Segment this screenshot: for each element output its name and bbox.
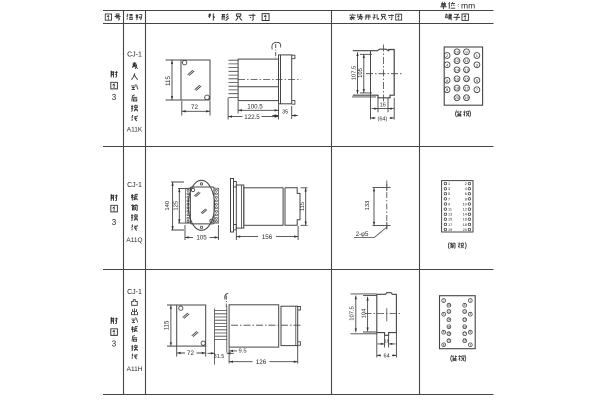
svg-text:5: 5	[476, 78, 479, 83]
svg-text:15: 15	[464, 76, 469, 81]
svg-text:12: 12	[455, 58, 460, 63]
svg-text:14: 14	[463, 213, 467, 217]
svg-text:5: 5	[448, 192, 450, 196]
svg-text:72: 72	[191, 104, 198, 111]
svg-text:1: 1	[476, 53, 479, 58]
svg-text:A11H: A11H	[127, 366, 143, 373]
svg-text:16: 16	[463, 218, 467, 222]
svg-text:105: 105	[358, 68, 364, 78]
svg-text:19: 19	[463, 339, 467, 343]
svg-text:(64): (64)	[378, 116, 388, 122]
svg-text:10: 10	[455, 49, 460, 54]
svg-text:CJ-1: CJ-1	[127, 52, 142, 59]
svg-text:2-φ5: 2-φ5	[356, 232, 369, 238]
svg-text:11: 11	[463, 310, 466, 314]
svg-text:35: 35	[282, 110, 288, 116]
svg-text:3: 3	[476, 62, 479, 67]
svg-text:3: 3	[448, 187, 450, 191]
svg-text:31.5: 31.5	[214, 354, 225, 360]
svg-text:3: 3	[112, 93, 117, 102]
svg-text:104: 104	[361, 308, 367, 318]
svg-text:10: 10	[447, 303, 451, 307]
svg-text:20: 20	[463, 228, 467, 232]
svg-text:CJ-1: CJ-1	[127, 182, 142, 189]
svg-text:19: 19	[448, 228, 452, 232]
svg-text:13: 13	[463, 318, 467, 322]
svg-text:7: 7	[476, 87, 479, 92]
svg-text:17: 17	[463, 332, 467, 336]
svg-text:20: 20	[447, 339, 451, 343]
svg-text:4: 4	[465, 187, 467, 191]
svg-text:A11K: A11K	[127, 127, 143, 134]
svg-text:6: 6	[446, 78, 449, 83]
svg-text:115: 115	[300, 202, 306, 211]
svg-text:8: 8	[465, 197, 467, 201]
svg-text:18: 18	[455, 86, 460, 91]
svg-text:122.5: 122.5	[244, 114, 260, 121]
svg-text:19: 19	[464, 95, 469, 100]
svg-text:13: 13	[464, 67, 469, 72]
svg-text:16: 16	[455, 76, 460, 81]
svg-text:12: 12	[447, 310, 451, 314]
svg-text:12: 12	[463, 208, 467, 212]
svg-text:CJ-1: CJ-1	[127, 289, 142, 296]
svg-text:9: 9	[465, 49, 468, 54]
svg-text:115: 115	[165, 76, 172, 86]
svg-text:3: 3	[112, 340, 117, 349]
svg-text:9: 9	[448, 202, 450, 206]
svg-text:7: 7	[448, 197, 450, 201]
svg-text:17: 17	[448, 223, 452, 227]
svg-text:16: 16	[447, 325, 451, 329]
svg-text:2: 2	[446, 53, 449, 58]
svg-text:1: 1	[448, 182, 450, 186]
svg-text:72: 72	[187, 350, 194, 357]
svg-text:2: 2	[465, 182, 467, 186]
svg-text:156: 156	[262, 234, 273, 241]
svg-text:133: 133	[365, 201, 371, 211]
svg-text:100.5: 100.5	[247, 103, 263, 110]
svg-text:107.5: 107.5	[351, 66, 357, 81]
svg-text:8: 8	[446, 87, 449, 92]
svg-text:140: 140	[165, 201, 171, 211]
svg-text:15: 15	[448, 218, 452, 222]
svg-text:mm: mm	[461, 1, 475, 11]
svg-text:20: 20	[455, 95, 460, 100]
svg-text:18: 18	[447, 332, 451, 336]
svg-text:17: 17	[464, 86, 469, 91]
svg-text:16: 16	[384, 338, 390, 343]
svg-text:11: 11	[448, 208, 452, 212]
svg-text:14: 14	[447, 318, 451, 322]
svg-text:126: 126	[256, 359, 267, 366]
svg-text:18: 18	[463, 223, 467, 227]
svg-text:3: 3	[112, 218, 117, 227]
svg-text:105: 105	[196, 235, 207, 242]
svg-text:15: 15	[463, 325, 467, 329]
svg-text:64: 64	[384, 354, 390, 360]
svg-text:10: 10	[463, 202, 467, 206]
svg-text:A11Q: A11Q	[126, 237, 142, 244]
svg-text:14: 14	[455, 67, 460, 72]
svg-text:9.5: 9.5	[239, 348, 247, 354]
svg-text:107.5: 107.5	[349, 306, 355, 321]
svg-text:16: 16	[380, 102, 386, 108]
svg-text:125: 125	[174, 201, 180, 211]
svg-text:115: 115	[165, 320, 171, 330]
svg-text:4: 4	[446, 62, 449, 67]
svg-text:13: 13	[448, 213, 452, 217]
svg-text:6: 6	[465, 192, 467, 196]
